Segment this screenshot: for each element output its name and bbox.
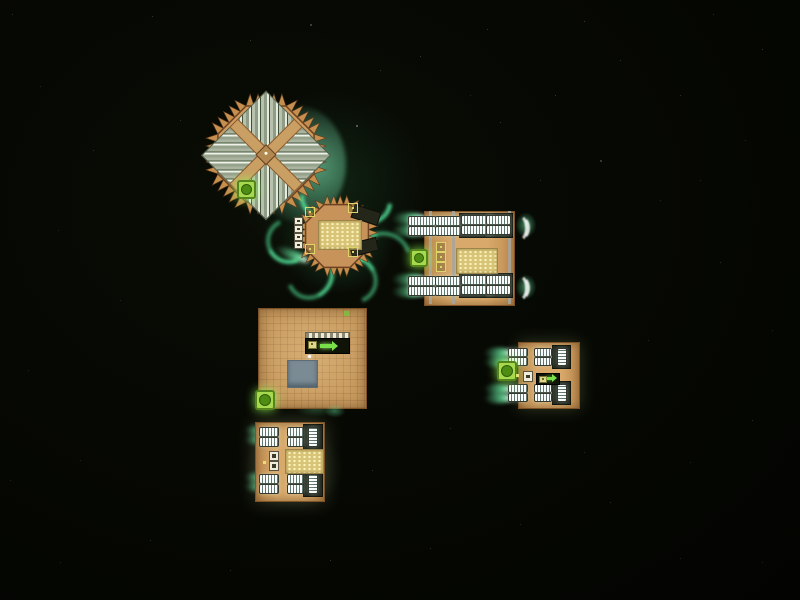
engine xyxy=(557,348,567,366)
ship-heavy-freighter[interactable] xyxy=(398,198,538,316)
engine xyxy=(508,384,528,393)
signal-dot xyxy=(516,374,519,377)
engine xyxy=(259,437,279,447)
engine xyxy=(259,474,279,484)
loader-module xyxy=(536,373,560,385)
gray-pad xyxy=(287,360,318,388)
reactor-module xyxy=(410,249,428,267)
crate-chip xyxy=(539,376,547,383)
crate-chip xyxy=(308,341,317,349)
thruster-box xyxy=(294,233,303,241)
engine xyxy=(287,474,304,484)
engine xyxy=(287,437,304,447)
crate-grid xyxy=(318,220,362,250)
engine xyxy=(557,384,567,402)
engine xyxy=(435,216,461,226)
arrow-icon xyxy=(552,374,557,382)
arrow-icon xyxy=(332,341,338,351)
engine xyxy=(508,393,528,402)
signal-dot xyxy=(263,461,266,464)
engine xyxy=(287,427,304,437)
thruster-wash xyxy=(512,276,530,300)
engine xyxy=(534,393,552,402)
engine xyxy=(534,348,552,357)
supply-box xyxy=(269,451,279,461)
engine xyxy=(259,484,279,494)
reactor-module xyxy=(237,180,256,199)
system-box xyxy=(305,244,315,254)
engine xyxy=(408,286,436,296)
reactor-module xyxy=(497,361,517,381)
engine xyxy=(308,427,318,447)
system-box xyxy=(436,242,446,252)
game-viewport[interactable] xyxy=(0,0,800,600)
thruster-box xyxy=(294,217,303,225)
crate-grid xyxy=(285,449,324,474)
engine xyxy=(408,216,436,226)
arrow-icon xyxy=(320,344,332,348)
thruster-box xyxy=(294,225,303,233)
system-box xyxy=(348,203,358,213)
engine xyxy=(534,357,552,366)
crate-grid xyxy=(456,248,498,274)
engine xyxy=(435,276,461,286)
system-box xyxy=(348,247,358,257)
engine xyxy=(408,226,436,236)
ship-freighter-east[interactable] xyxy=(488,336,592,414)
ship-cargo-platform[interactable] xyxy=(258,308,365,407)
signal-dot xyxy=(308,355,311,358)
engine xyxy=(408,276,436,286)
engine xyxy=(508,348,528,357)
system-box xyxy=(305,207,315,217)
supply-box xyxy=(269,461,279,471)
system-box xyxy=(436,262,446,272)
engine xyxy=(435,226,461,236)
engine xyxy=(534,384,552,393)
supply-box xyxy=(523,371,533,382)
ship-freighter-south[interactable] xyxy=(243,410,343,510)
engine xyxy=(435,286,461,296)
thruster-box xyxy=(294,241,303,249)
engine xyxy=(308,474,318,494)
system-box xyxy=(436,252,446,262)
ship-spiked-corvette[interactable] xyxy=(282,190,390,290)
engine xyxy=(287,484,304,494)
marker-dot xyxy=(344,311,349,316)
thruster-wash xyxy=(512,216,530,240)
reactor-module xyxy=(255,390,275,410)
engine xyxy=(259,427,279,437)
conveyor-loader xyxy=(305,338,350,354)
